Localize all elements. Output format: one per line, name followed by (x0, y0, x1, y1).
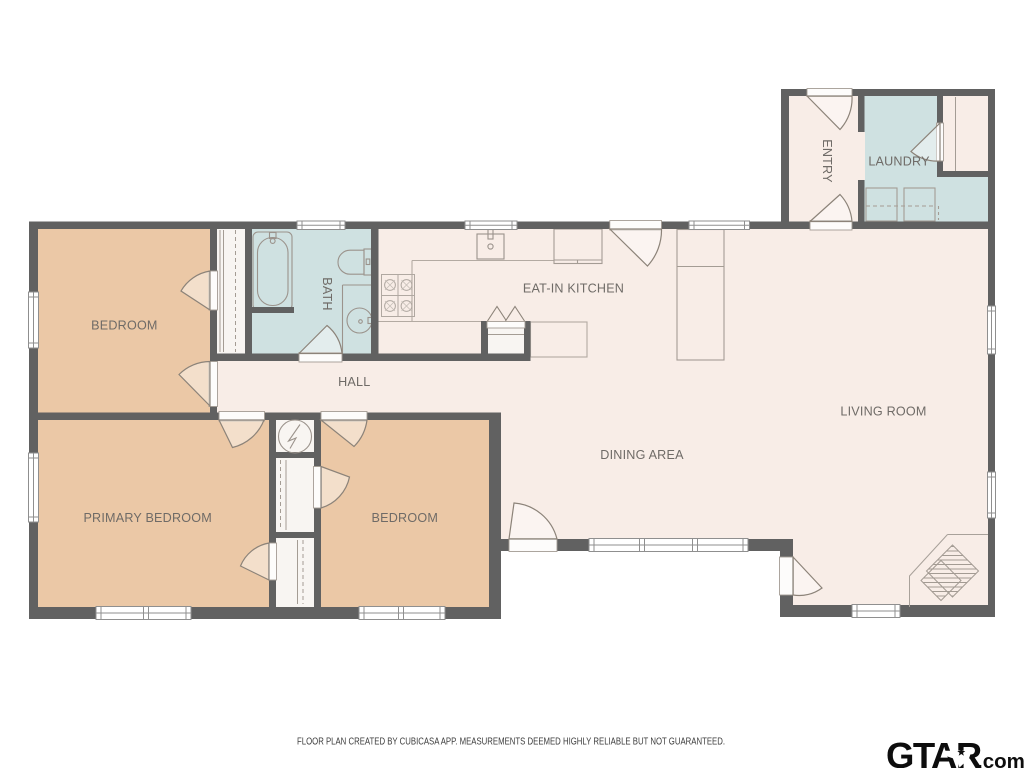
svg-text:HALL: HALL (338, 375, 370, 389)
svg-text:.com: .com (977, 750, 1024, 768)
svg-text:DINING AREA: DINING AREA (600, 448, 684, 462)
svg-text:BATH: BATH (320, 277, 334, 310)
svg-text:LIVING ROOM: LIVING ROOM (840, 404, 926, 418)
svg-text:ENTRY: ENTRY (820, 139, 834, 183)
svg-text:EAT-IN KITCHEN: EAT-IN KITCHEN (523, 282, 624, 296)
svg-text:BEDROOM: BEDROOM (372, 511, 438, 525)
svg-text:PRIMARY BEDROOM: PRIMARY BEDROOM (83, 511, 212, 525)
svg-text:LAUNDRY: LAUNDRY (868, 155, 930, 169)
svg-text:FLOOR PLAN CREATED BY CUBICASA: FLOOR PLAN CREATED BY CUBICASA APP. MEAS… (297, 737, 725, 748)
svg-text:BEDROOM: BEDROOM (91, 318, 157, 332)
